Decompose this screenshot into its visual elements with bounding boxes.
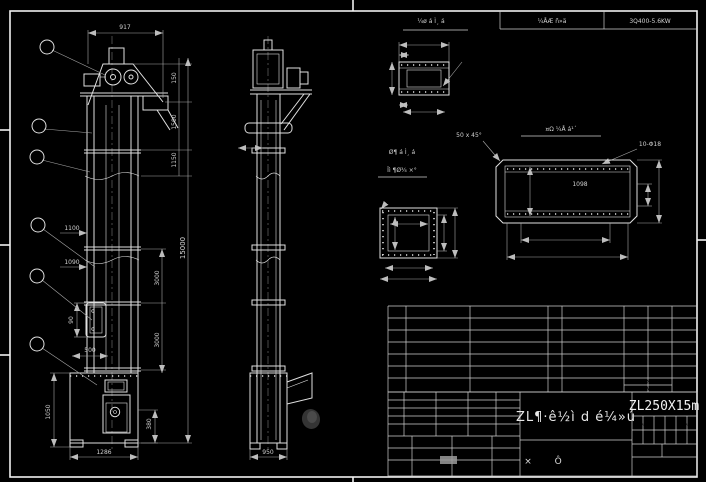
dim-450: 450 <box>244 138 253 144</box>
dim-95: 95 <box>420 76 425 82</box>
dim-917: 917 <box>119 24 131 31</box>
dim-1180: 1180 <box>561 250 572 256</box>
bom-material: ¼Å Æ· <box>566 369 582 377</box>
casing-flanges <box>84 150 141 371</box>
dim-25: 25 <box>63 425 68 431</box>
balloon-4: 4 <box>36 222 40 230</box>
tb-right2: ÇÏ ±ç <box>660 422 670 427</box>
header-model-cell: 3Q400-5.6KW <box>629 18 670 25</box>
tb-label1: ±ÅÇ¶ <box>391 428 402 433</box>
bom-name: Ç¶ °X° ÕÅ <box>474 369 499 377</box>
bom-qty: 1X <box>552 371 559 377</box>
bom-name: ±ä ×Ø¾ tØ=2000 <box>474 334 513 341</box>
bom-header-weight2: ÕÅ ·¸ <box>643 386 654 391</box>
balloon-6: 6 <box>35 341 39 349</box>
front-view <box>70 36 178 452</box>
dim-28: 28 <box>179 425 185 430</box>
bom-material: ¹ ¼Ö <box>566 310 577 317</box>
bom-no: 5 <box>396 323 399 329</box>
dim-4x100: 4X100=400 <box>413 102 440 108</box>
side-view: 450 950 <box>238 36 312 460</box>
dim-1098: 1098 <box>572 181 587 188</box>
detail-inlet-section: ¤Ω ¼Å á¹´ 50 x 45° 10-Φ18 1098 380 150 4… <box>456 126 662 260</box>
dim-1100: 1100 <box>64 225 79 232</box>
dim-150: 150 <box>171 72 178 84</box>
bom-name: ä¶Ø ×° Âµ <box>474 357 498 365</box>
bom-header-name: Ã ¬ Æ <box>502 382 517 390</box>
tb-small2: ¼Ø ¾¼ <box>445 467 460 472</box>
drawing-main-title: ZL¶·ê½ì d é¼»ú <box>516 410 636 425</box>
bom-header-code: ´ ¹Å <box>434 382 443 390</box>
detail-square-flange: Ø¶ á Ì¸ á Ïì ¶Ø¾ ×° 14-Φ14 305 300 360 4… <box>378 149 458 279</box>
dim-4x875: 4X87.5=350 <box>396 263 422 268</box>
label-14-phi14: 14-Φ14 <box>398 198 414 203</box>
model-number: ZL250X15m <box>629 399 700 414</box>
dim-30: 30 <box>404 49 410 54</box>
dim-305: 305 <box>405 219 413 224</box>
tb-sheets1: ¹² ÕÅ <box>642 449 653 454</box>
bom-row: 5 ±Ç ·3 ¸´ 1µ <box>396 323 499 329</box>
balloon-5: 5 <box>35 273 39 281</box>
balloon-2: 2 <box>37 123 41 131</box>
bom-no: 4 <box>396 335 399 341</box>
dim-430b: 430 <box>405 274 413 279</box>
dim-3000a: 3000 <box>154 270 161 285</box>
dim-1050: 1050 <box>45 404 52 419</box>
bom-name: ±Ç ·3 ¸´ 1µ <box>474 323 499 329</box>
bom-header-no: Ø¶Ç <box>392 384 402 390</box>
bom-qty: 1 <box>554 359 557 365</box>
tb-sheets2: µÚ ÕÅ <box>673 449 687 454</box>
dim-300: 300 <box>389 232 394 240</box>
tb-right3: ±ì ¼Ç <box>681 422 692 427</box>
balloon-1: 1 <box>45 44 49 52</box>
bom-name: ·C ±ä ¾tØ=1500mm <box>474 346 521 353</box>
detail-b-title1: Ø¶ á Ì¸ á <box>389 149 416 156</box>
bom-row: 3 ·C ±ä ¾tØ=1500mm 1 ¹¾6 ÏÖ <box>396 346 582 353</box>
bom-qty: 1 <box>554 311 557 317</box>
title-block: ±ÅÇ¶ ¸Ø¾¼Å Ç©×Ö ÈÕÆÚ ¼Æ ¾Ø ¼Ø ¾¼ ZL¶·ê½ì… <box>388 392 699 476</box>
label-10-phi18: 10-Φ18 <box>639 141 661 148</box>
smudge-blob <box>300 407 322 430</box>
dim-360: 360 <box>438 229 443 237</box>
label-11-phi14: 11-Φ14 <box>467 56 484 62</box>
bom-row: 4 ±ä ×Ø¾ tØ=2000 5 ¹¾6 ÏÖ <box>396 334 582 341</box>
bom-qty: 1 <box>554 347 557 353</box>
bom-no: 6 <box>396 311 399 317</box>
tb-label2: ¸Ø¾¼Å <box>413 428 428 433</box>
bom-no: 2 <box>396 359 399 365</box>
balloon-3: 3 <box>35 154 39 162</box>
bom-no: 1 <box>396 371 399 377</box>
header-project-cell: ¼ÅÆ ñ»ä <box>538 18 567 25</box>
dim-2x100: 2X100=200 <box>385 67 390 91</box>
bom-row: 2 ä¶Ø ×° Âµ 1 ¹ ¼Ö <box>396 357 578 365</box>
bom-name: Ø¶ ×° Âµ <box>474 309 496 317</box>
bom-table: 6 Ø¶ ×° Âµ 1 ¹ ¼Ö 5 ±Ç ·3 ¸´ 1µ 4 ±ä ×Ø¾… <box>388 306 697 392</box>
dim-1150: 1150 <box>171 152 178 167</box>
dim-90: 90 <box>68 316 75 324</box>
dim-500: 500 <box>84 347 96 354</box>
bom-header-material: ² Å ä Ï <box>586 382 600 390</box>
bom-row: 6 Ø¶ ×° Âµ 1 ¹ ¼Ö <box>396 309 578 317</box>
dim-380: 380 <box>146 418 153 430</box>
dim-15000: 15000 <box>179 237 187 259</box>
detail-a-title: ¼ø á Ì¸ á <box>417 18 445 25</box>
bom-material: ¹ ¼Ö <box>566 358 577 365</box>
sheet-type-label: × Ô <box>524 455 572 467</box>
bom-header-qty: Ø¹ <box>552 384 558 390</box>
cad-drawing-canvas[interactable]: ¼ÅÆ ñ»ä 3Q400-5.6KW <box>0 0 706 482</box>
dim-2x400: 2X400=800 <box>561 233 588 239</box>
bom-qty: 5 <box>554 335 557 341</box>
bom-header-weight: ±Ç¾X ¹ÏÆ <box>638 379 658 384</box>
tb-small1: ¼Æ ¾Ø <box>391 442 407 447</box>
detail-top-flange: ¼ø á Ì¸ á 440 30 95 2X100=200 40 4X100=4… <box>385 18 484 112</box>
dim-430r: 430 <box>449 229 454 237</box>
bom-no: 3 <box>396 347 399 353</box>
detail-c-title: ¤Ω ¼Å á¹´ <box>545 126 576 133</box>
dim-380c: 380 <box>524 189 529 197</box>
dim-1500: 1500 <box>171 114 178 129</box>
top-header-bar: ¼ÅÆ ñ»ä 3Q400-5.6KW <box>500 11 697 29</box>
bom-material: ¹¾6 ÏÖ <box>566 346 582 353</box>
tb-label3: Ç©×Ö <box>446 428 459 433</box>
dim-440: 440 <box>420 37 429 43</box>
dim-3000b: 3000 <box>154 332 161 347</box>
label-chamfer: 50 x 45° <box>456 132 482 139</box>
dim-1286: 1286 <box>96 449 111 456</box>
dim-950: 950 <box>262 449 274 456</box>
dim-40: 40 <box>405 99 411 104</box>
dim-150c: 150 <box>642 192 647 200</box>
tb-right1: ±ì ¼Ç <box>637 422 648 427</box>
dim-1090: 1090 <box>64 259 79 266</box>
tb-label4: ÈÕÆÚ <box>475 428 489 433</box>
bom-material: ¹¾6 ÏÖ <box>566 334 582 341</box>
signature-stamp <box>440 456 457 464</box>
bom-row: 1 Ç¶ °X° ÕÅ 1X ¼Å Æ· <box>396 369 583 377</box>
dim-470: 470 <box>653 188 658 196</box>
detail-b-title2: Ïì ¶Ø¾ ×° <box>387 167 417 174</box>
bom-header-note: ±, X Ø <box>678 384 691 390</box>
